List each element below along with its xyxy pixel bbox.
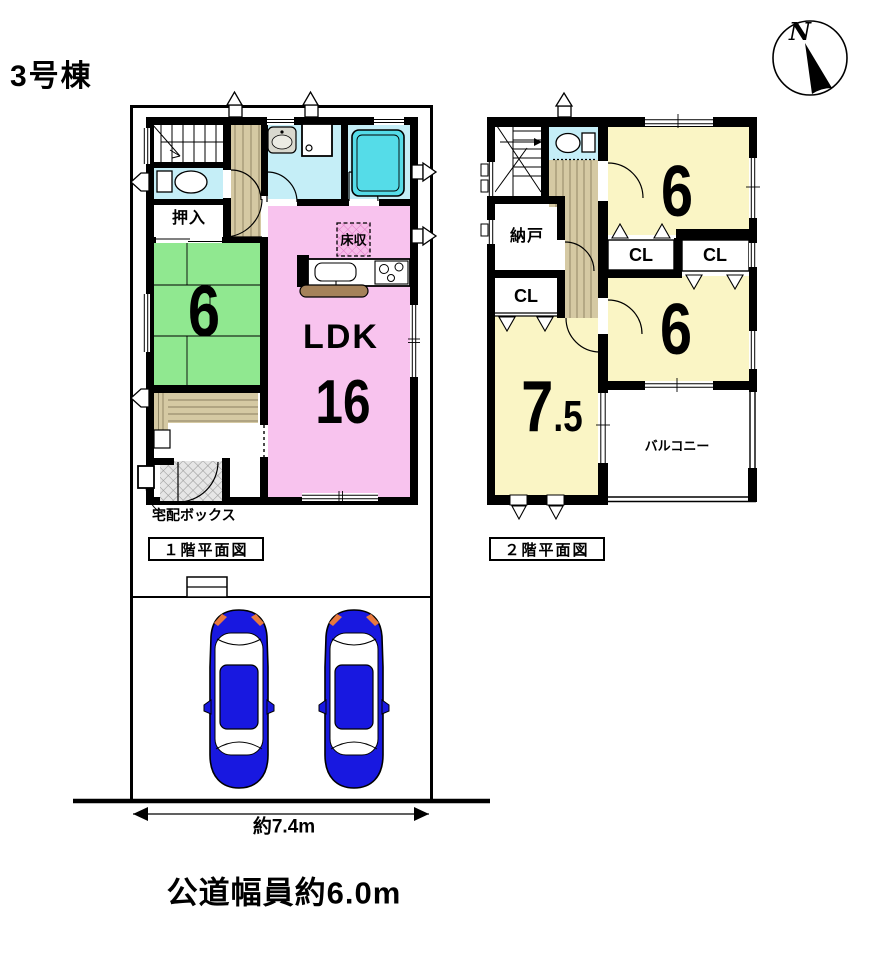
floor2-plan: [481, 93, 760, 519]
kitchen-front: [300, 285, 368, 297]
entrance-porch: [160, 461, 224, 501]
vanity-sink: [268, 127, 296, 153]
caption-floor2: ２階平面図: [489, 537, 605, 561]
label-cl-mid: CL: [629, 246, 653, 264]
room-size-main-frac: .5: [553, 395, 582, 439]
room-size-mid-2f: 6: [660, 294, 692, 366]
toilet-fixture-1f: [157, 171, 207, 193]
car-2: [319, 610, 389, 788]
utility-meter-box: [187, 577, 227, 597]
label-cl-left: CL: [514, 287, 538, 305]
frontage-dimension-label: 約7.4m: [253, 818, 315, 837]
parking-area: [204, 610, 389, 788]
room-size-main-int: 7: [521, 371, 553, 443]
north-label: N: [789, 20, 811, 44]
entrance-step: [154, 393, 168, 432]
bathtub: [352, 130, 404, 196]
page-title: 3号棟: [10, 62, 93, 92]
car-1: [204, 610, 274, 788]
floorplan-canvas: 3号棟 N 押入 6 LDK 16 床収 宅配ボックス １階平面図 6 納戸 C…: [0, 0, 869, 973]
washing-machine: [302, 124, 332, 156]
room-label-ldk: LDK: [303, 320, 379, 354]
room-label-oshiire: 押入: [172, 211, 206, 227]
label-cl-right: CL: [703, 246, 727, 264]
label-delivery-box: 宅配ボックス: [152, 508, 236, 522]
floorplan-drawing: [0, 0, 869, 973]
room-size-ldk: 16: [315, 372, 370, 434]
vent-toilet-2f: [556, 93, 572, 117]
room-size-tatami: 6: [188, 276, 220, 348]
room-size-main-2f: 7.5: [521, 371, 582, 443]
room-label-balcony: バルコニー: [645, 440, 710, 453]
floor1-plan: [131, 92, 436, 515]
caption-floor1: １階平面図: [148, 537, 264, 561]
room-label-nando: 納戸: [510, 229, 544, 245]
label-floor-storage: 床収: [340, 234, 366, 247]
road-width-label: 公道幅員約6.0m: [167, 878, 402, 909]
room-size-top-2f: 6: [661, 156, 693, 228]
entrance-hall-floor: [168, 393, 258, 423]
